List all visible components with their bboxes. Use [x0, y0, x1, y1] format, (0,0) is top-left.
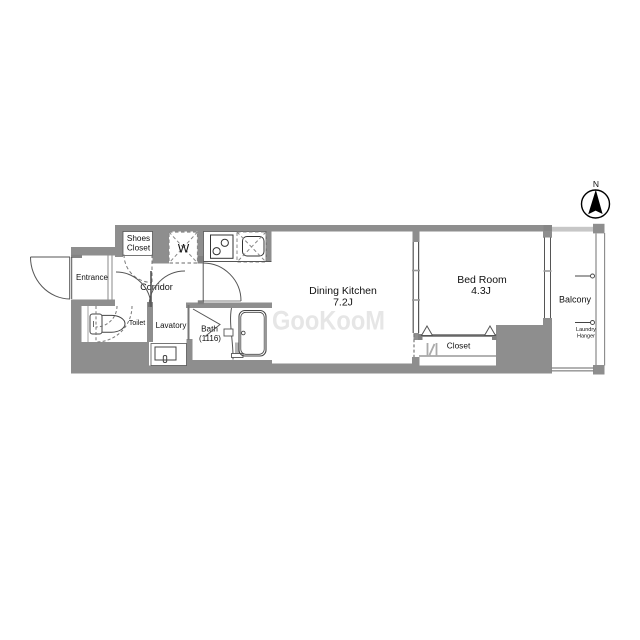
- svg-text:Toilet: Toilet: [129, 320, 145, 327]
- svg-text:4.3J: 4.3J: [471, 285, 491, 297]
- svg-text:Closet: Closet: [447, 341, 471, 351]
- svg-text:GooKooM: GooKooM: [272, 306, 385, 336]
- svg-text:Lavatory: Lavatory: [156, 321, 187, 330]
- svg-text:Shoes: Shoes: [127, 234, 150, 243]
- svg-text:Laundry: Laundry: [576, 327, 596, 333]
- svg-text:7.2J: 7.2J: [333, 297, 353, 309]
- svg-text:Balcony: Balcony: [559, 295, 592, 305]
- svg-text:W: W: [178, 242, 190, 256]
- svg-text:Entrance: Entrance: [76, 273, 109, 282]
- svg-text:N: N: [593, 179, 599, 189]
- svg-text:(1116): (1116): [199, 334, 221, 343]
- svg-text:Dining Kitchen: Dining Kitchen: [309, 285, 377, 297]
- svg-text:Closet: Closet: [127, 244, 151, 253]
- svg-text:Hanger: Hanger: [577, 334, 595, 340]
